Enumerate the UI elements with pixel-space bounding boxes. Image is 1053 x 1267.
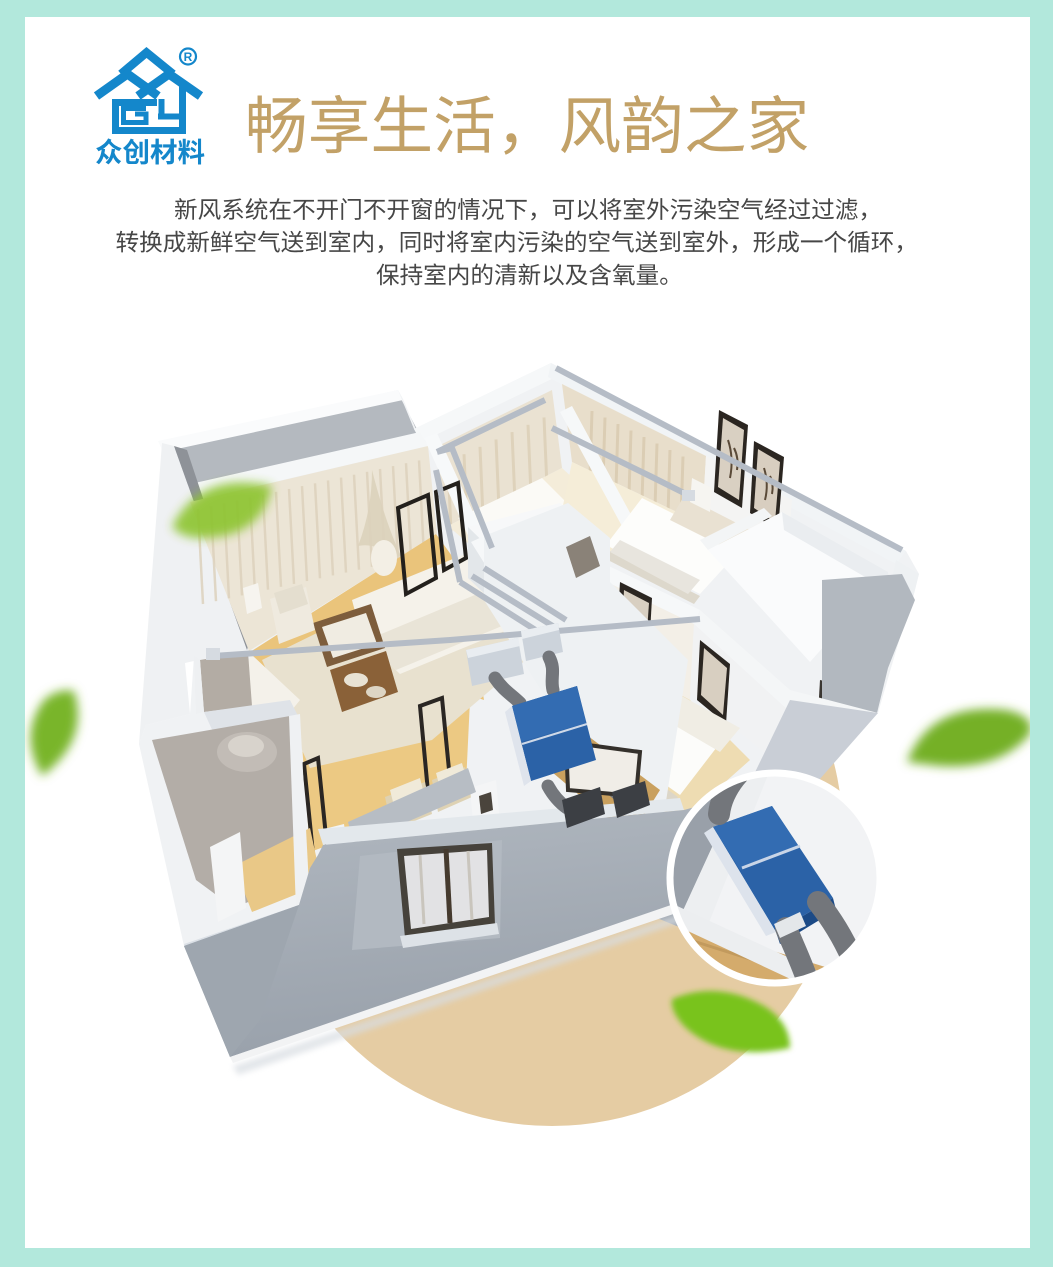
svg-text:R: R: [184, 50, 193, 64]
